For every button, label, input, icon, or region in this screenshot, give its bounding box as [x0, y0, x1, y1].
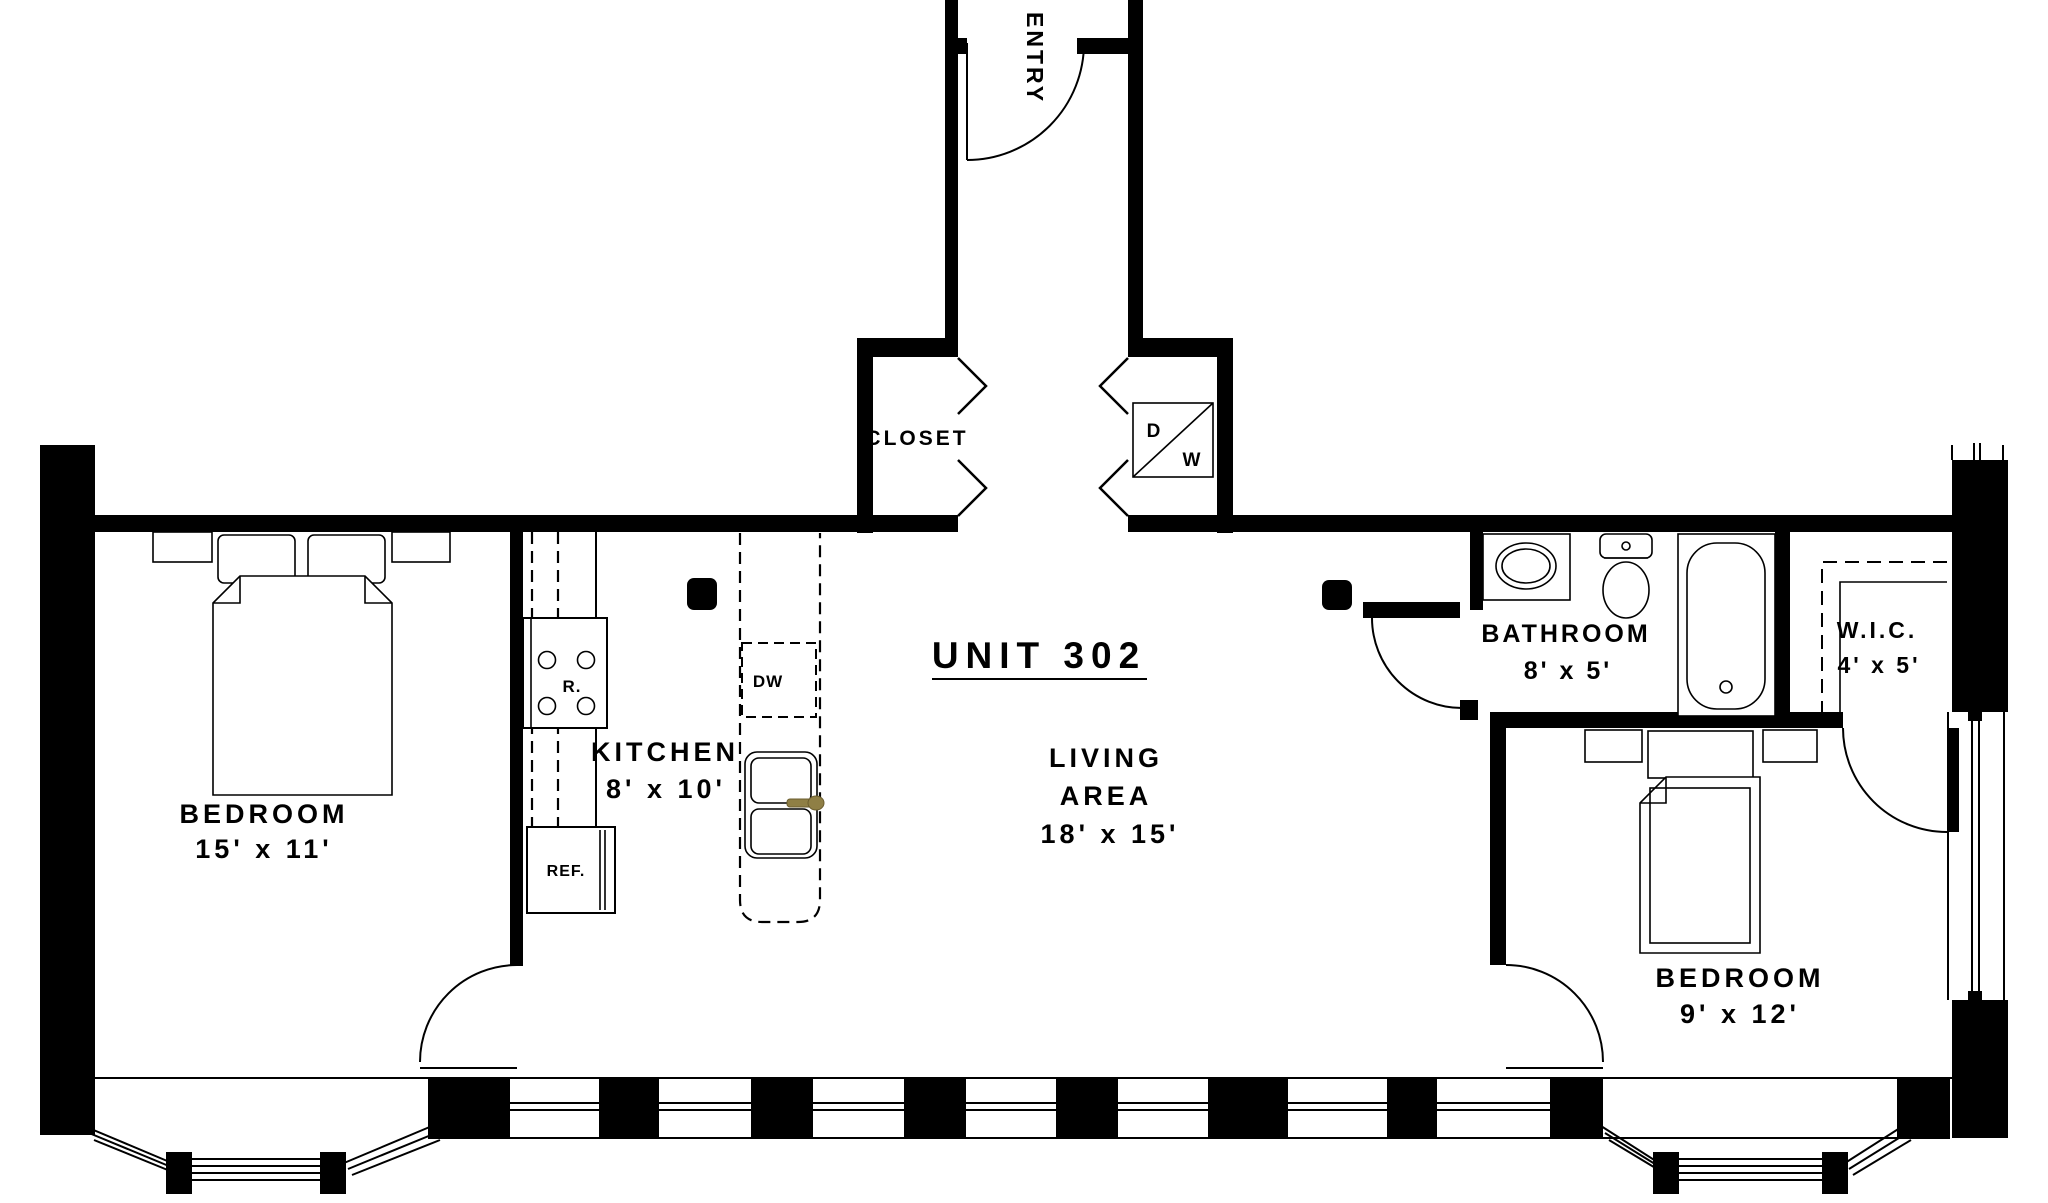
- burner-icon: [578, 652, 595, 669]
- bedroom-right-door-arc: [1506, 965, 1603, 1062]
- bay-post: [320, 1152, 346, 1194]
- nightstand-icon: [392, 532, 450, 562]
- nightstand-icon: [1763, 730, 1817, 762]
- burner-icon: [578, 698, 595, 715]
- window-pier: [751, 1078, 813, 1138]
- bathroom-dims: 8' x 5': [1524, 657, 1613, 685]
- unit-title: UNIT 302: [932, 635, 1146, 676]
- floor-plan: ENTRY CLOSET D W BEDROOM 15' x 11': [0, 0, 2048, 1203]
- bathroom-bottom-wall: [1490, 712, 1843, 728]
- bedroom-left-dims: 15' x 11': [195, 834, 332, 864]
- bed-icon: [213, 576, 392, 795]
- living-dims: 18' x 15': [1041, 819, 1180, 849]
- closet-bifold-door: [958, 460, 986, 516]
- dryer-label: D: [1147, 421, 1162, 442]
- window-pier: [428, 1078, 510, 1138]
- bathroom-door-stub: [1460, 700, 1478, 720]
- wic-dims: 4' x 5': [1837, 652, 1920, 678]
- bay-post: [166, 1152, 192, 1194]
- dishwasher-label: DW: [753, 672, 783, 691]
- kitchen-label: KITCHEN: [591, 737, 739, 767]
- bay-window-left: [84, 1126, 440, 1194]
- laundry-nook: D W: [1100, 358, 1213, 516]
- bathroom-door-wall: [1363, 602, 1460, 618]
- window-pier: [1387, 1078, 1437, 1138]
- tub-wic-wall: [1775, 532, 1790, 728]
- nightstand-icon: [1585, 730, 1642, 762]
- living-label-line1: LIVING: [1049, 743, 1163, 773]
- bedroom-right-dims: 9' x 12': [1680, 999, 1800, 1029]
- toilet-icon: [1600, 534, 1652, 618]
- right-wall-window-top-ticks: [1952, 443, 2003, 460]
- bathroom-door-arc: [1372, 618, 1462, 708]
- bay-post: [1822, 1152, 1848, 1194]
- wic-door-arc: [1843, 728, 1947, 832]
- bedroom-right: BEDROOM 9' x 12': [1506, 730, 1825, 1068]
- exterior-pier-left: [40, 445, 95, 1135]
- kitchen-dims: 8' x 10': [606, 774, 726, 804]
- bedroom-right-label: BEDROOM: [1656, 963, 1825, 993]
- bedroom-left-label: BEDROOM: [180, 799, 349, 829]
- bedroom-left: BEDROOM 15' x 11': [153, 532, 517, 1068]
- window-pier: [1208, 1078, 1288, 1138]
- bay-glass-angled: [84, 1126, 180, 1175]
- closet-top-wall: [857, 338, 958, 357]
- window-pier: [1056, 1078, 1118, 1138]
- bay-glass-center: [1679, 1159, 1822, 1180]
- closet: CLOSET: [865, 358, 986, 516]
- closet-label: CLOSET: [865, 427, 968, 450]
- bay-post: [1653, 1152, 1679, 1194]
- kitchen: R. REF. DW KITCHEN 8' x 10': [523, 532, 824, 922]
- exterior-pier-right: [1952, 460, 2008, 712]
- walk-in-closet: W.I.C. 4' x 5': [1822, 562, 1959, 832]
- main-wall-left: [95, 515, 958, 532]
- laundry-right-wall: [1217, 357, 1233, 533]
- bay-pier-right-bay-right: [1897, 1079, 1950, 1138]
- laundry-bifold-door: [1100, 358, 1128, 414]
- bedroom-left-door-arc: [420, 965, 517, 1062]
- window-pier: [904, 1078, 966, 1138]
- main-wall-right: [1128, 515, 1952, 532]
- refrigerator-label: REF.: [547, 863, 586, 880]
- bathroom-sink-icon: [1483, 534, 1570, 600]
- faucet-knob: [808, 796, 824, 810]
- bottom-windows: [95, 1078, 1952, 1138]
- bay-glass-angled: [344, 1126, 440, 1175]
- bay-window-right: [1601, 1126, 1911, 1194]
- bathtub-icon: [1678, 534, 1775, 716]
- wic-door-leaf: [1947, 728, 1959, 832]
- living-label-line2: AREA: [1060, 781, 1153, 811]
- burner-icon: [539, 652, 556, 669]
- closet-bifold-door: [958, 358, 986, 414]
- range-label: R.: [563, 677, 582, 696]
- bathroom: BATHROOM 8' x 5': [1372, 534, 1775, 716]
- exterior-corner-bottom-right: [1952, 1000, 2008, 1138]
- kitchen-sink-icon: [745, 752, 824, 858]
- bathroom-label: BATHROOM: [1481, 620, 1650, 648]
- headboard-icon: [1648, 731, 1753, 778]
- nightstand-icon: [153, 532, 212, 562]
- laundry-bifold-door: [1100, 460, 1128, 516]
- washer-label: W: [1183, 450, 1202, 471]
- burner-icon: [539, 698, 556, 715]
- kitchen-island: [740, 533, 820, 922]
- bay-pier-right-bay-left: [1550, 1079, 1603, 1138]
- wic-shelf-line: [1840, 582, 1947, 712]
- laundry-top-wall: [1128, 338, 1233, 357]
- structural-column: [687, 578, 717, 610]
- bedroom-kitchen-wall: [510, 532, 523, 966]
- structural-column: [1322, 580, 1352, 610]
- bathroom-left-stub: [1470, 532, 1483, 610]
- entry-label: ENTRY: [1022, 12, 1048, 104]
- entry-door-jamb-right: [1077, 38, 1143, 54]
- range-icon: [523, 618, 607, 728]
- window-pier: [599, 1078, 659, 1138]
- wic-label: W.I.C.: [1837, 617, 1918, 643]
- bay-glass-center: [192, 1159, 322, 1180]
- entry-door-jamb-left: [945, 38, 967, 54]
- entry-corridor: ENTRY: [967, 12, 1084, 160]
- living-bedroom-wall: [1490, 712, 1506, 965]
